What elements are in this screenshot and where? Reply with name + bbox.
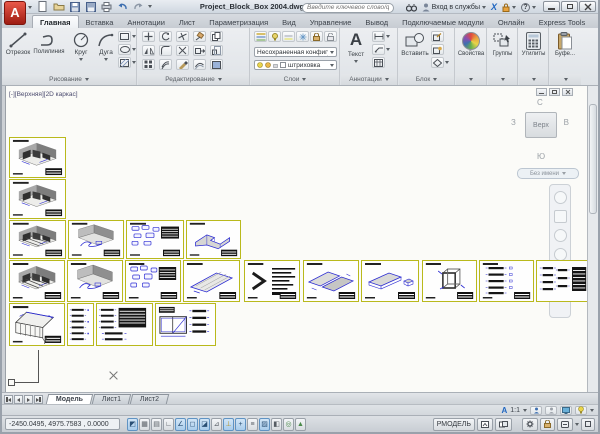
annotation-scale-icon: А [501,406,507,415]
viewcube-east[interactable]: В [564,118,569,127]
move-tool[interactable] [142,31,155,42]
sign-in-control[interactable]: Вход в службы [422,3,486,12]
drawing-close-button[interactable] [562,88,573,96]
stretch-tool[interactable] [193,45,206,56]
block-thumbnail[interactable] [9,303,65,346]
color-wheel-icon [462,32,480,50]
drawing-canvas[interactable]: [-][Верхняя][2D каркас] С З В Ю Верх Без… [6,86,587,392]
drawing-minimize-button[interactable] [536,88,547,96]
viewcube[interactable]: С З В Ю Верх [509,98,573,164]
autocad-window: A Project_Block_Box 2004.dwg [0,0,600,434]
block-thumbnail[interactable] [155,303,216,346]
calculator-icon [526,32,541,50]
viewcube-top-face[interactable]: Верх [525,112,557,138]
table-tool[interactable] [372,57,385,68]
lock-control[interactable] [502,3,516,12]
scrollbar-thumb[interactable] [589,104,597,214]
fillet-tool[interactable] [159,45,172,56]
scale-tool[interactable] [210,45,223,56]
ribbon-tab-bar: Главная Вставка Аннотации Лист Параметри… [2,14,598,28]
panel-draw: Отрезок Полилиния Круг Дуга [2,28,137,85]
tab-insert[interactable]: Вставка [79,16,121,28]
infer-constraints-toggle[interactable]: ◩ [127,418,138,431]
ucs-x-axis [14,382,39,383]
ucs-origin-box [8,379,15,386]
block-thumbnail[interactable] [479,260,534,302]
leader-tool[interactable] [372,44,385,55]
block-thumbnail[interactable] [536,260,587,302]
minimize-button[interactable] [543,1,560,12]
search-binoculars-icon[interactable] [406,3,417,12]
polyline-icon [39,32,59,48]
block-thumbnail[interactable] [303,260,359,302]
viewcube-north[interactable]: С [537,98,543,107]
ribbon: Отрезок Полилиния Круг Дуга [2,28,598,86]
layer-isolate-tool[interactable] [282,31,295,42]
arc-tool[interactable]: Дуга [94,30,118,63]
ortho-toggle[interactable]: ∟ [163,418,174,431]
block-thumbnail[interactable] [68,220,124,259]
panel-label-layers[interactable]: Слои [251,74,339,85]
copy-tool[interactable] [210,31,223,42]
panel-utilities: Утилиты [519,28,549,85]
restore-button[interactable] [561,1,578,12]
annotation-monitor-toggle[interactable]: ▲ [295,418,306,431]
osnap-toggle[interactable]: ◻ [187,418,198,431]
tab-parametric[interactable]: Параметризация [202,16,275,28]
match-properties-tool[interactable] [176,59,189,70]
first-layout-button[interactable] [4,395,13,404]
selection-cycling-toggle[interactable]: ◎ [283,418,294,431]
drawing-restore-button[interactable] [549,88,560,96]
layer-state-dropdown[interactable]: Несохраненная конфигурация сло [254,47,337,57]
polar-tracking-toggle[interactable]: ∠ [175,418,186,431]
quick-properties-toggle[interactable]: ◧ [271,418,282,431]
text-tool[interactable]: A Текст [343,30,369,65]
array-tool[interactable] [142,59,155,70]
block-thumbnail[interactable] [183,260,240,302]
tab-express-tools[interactable]: Express Tools [532,16,593,28]
help-search [302,2,394,12]
quick-view-drawings-button[interactable] [495,418,512,431]
panel-label-clipboard[interactable] [550,74,581,85]
osnap-3d-toggle[interactable]: ◪ [199,418,210,431]
block-thumbnail[interactable] [96,303,153,346]
erase-tool[interactable] [193,31,206,42]
vertical-scrollbar[interactable] [587,86,598,392]
model-space-button[interactable]: РМОДЕЛЬ [433,418,475,431]
status-overflow-arrow-icon[interactable] [590,409,594,412]
viewcube-wcs-menu[interactable]: Без имени [517,168,579,179]
plot-button[interactable] [100,1,113,12]
save-button[interactable] [68,1,81,12]
transparency-toggle[interactable]: ▨ [259,418,270,431]
insert-block-tool[interactable]: Вставить [401,30,429,57]
block-thumbnail[interactable] [361,260,419,302]
zoom-icon[interactable] [554,229,567,242]
open-button[interactable] [52,1,65,12]
ucs-y-axis [38,350,39,383]
viewcube-south[interactable]: Ю [537,152,545,161]
hardware-acceleration-icon[interactable] [575,406,587,415]
clipboard-tool[interactable]: Буфе... [551,30,579,57]
application-menu-arrow-icon [28,6,32,9]
circle-tool[interactable]: Круг [68,30,94,63]
steering-wheel-icon[interactable] [554,191,567,204]
exchange-apps-icon[interactable]: X [491,2,497,12]
ucs-y-axis-label: Y [42,337,47,346]
layer-properties-tool[interactable] [254,31,267,42]
qat-customize-arrow-icon[interactable] [148,5,152,8]
annotation-visibility-icon[interactable] [530,406,542,415]
layer-lock-tool[interactable] [310,31,323,42]
block-thumbnail[interactable] [9,220,66,259]
arc-icon [97,32,115,48]
layer-color-swatch [280,62,286,68]
viewport-controls-label[interactable]: [-][Верхняя][2D каркас] [9,91,78,98]
dimension-tool[interactable] [372,31,385,42]
utilities-tool[interactable]: Утилиты [520,30,547,57]
new-button[interactable] [36,1,49,12]
redo-button[interactable] [132,1,145,12]
layer-on-icon [257,62,263,68]
panel-properties: Свойства [456,28,487,85]
block-thumbnail[interactable] [67,303,94,346]
block-edit-tool[interactable] [431,31,444,42]
block-thumbnail[interactable] [125,260,181,302]
block-thumbnail[interactable] [422,260,477,302]
block-thumbnail[interactable] [126,220,184,259]
panel-label-annotation[interactable]: Аннотации [341,74,397,85]
panel-label-groups[interactable] [488,74,517,85]
panel-modify: Редактирование [138,28,250,85]
panel-groups: Группы [488,28,518,85]
pan-icon[interactable] [554,210,567,223]
sign-in-label: Вход в службы [432,4,480,11]
snap-toggle[interactable]: ▦ [139,418,150,431]
lineweight-toggle[interactable]: ≡ [247,418,258,431]
hatch-tool[interactable] [118,57,131,68]
search-input[interactable] [302,3,394,13]
quick-view-layouts-button[interactable] [477,418,493,431]
next-layout-button[interactable] [24,395,33,404]
tab-view[interactable]: Вид [275,16,303,28]
annotation-autoscale-icon[interactable] [545,406,557,415]
layer-freeze-tool[interactable] [296,31,309,42]
tab-home[interactable]: Главная [32,15,79,28]
layout-tab-bar: Модель Лист1 Лист2 [2,392,598,404]
panel-label-modify[interactable]: Редактирование [138,74,249,85]
drawing-window-controls [536,88,573,96]
polyline-tool[interactable]: Полилиния [32,30,66,55]
window-controls [543,1,596,12]
close-button[interactable] [579,1,596,12]
panel-label-draw[interactable]: Рисование [2,74,136,85]
annotation-scale-arrow-icon[interactable] [523,409,527,412]
status-bar: -2450.0495, 4975.7583 , 0.0000 ◩ ▦ ▤ ∟ ∠… [2,415,598,432]
tab-plugins[interactable]: Подключаемые модули [395,16,491,28]
otrack-toggle[interactable]: ⊿ [211,418,222,431]
insert-block-icon [405,32,425,49]
groups-icon [493,32,512,50]
layer-dropdown[interactable]: штриховка [254,60,337,70]
trim-tool[interactable] [176,31,189,42]
ellipse-tool[interactable] [118,44,131,55]
annotation-scale-value[interactable]: 1:1 [510,407,520,414]
panel-block: Вставить Блок [399,28,455,85]
line-tool[interactable]: Отрезок [4,30,32,56]
layer-off-tool[interactable] [268,31,281,42]
dynamic-input-toggle[interactable]: + [235,418,246,431]
circle-icon [72,32,90,48]
rotate-tool[interactable] [159,31,172,42]
text-icon: A [343,30,369,50]
grid-toggle[interactable]: ▤ [151,418,162,431]
block-thumbnail[interactable] [9,179,66,219]
drawing-status-bar: А 1:1 [2,404,598,415]
panel-label-utilities[interactable] [519,74,548,85]
quick-access-toolbar [36,1,152,12]
block-thumbnail[interactable] [9,260,65,302]
groups-tool[interactable]: Группы [489,30,516,57]
tab-layout2[interactable]: Лист2 [130,394,170,404]
clipboard-icon [558,32,572,50]
viewcube-west[interactable]: З [511,118,516,127]
clean-screen-button[interactable] [581,418,595,431]
layer-unlock-icon [273,62,278,68]
explode-tool[interactable] [176,45,189,56]
last-layout-button[interactable] [34,395,43,404]
panel-layers: Несохраненная конфигурация сло штриховка… [251,28,340,85]
panel-label-properties[interactable] [456,74,486,85]
performance-button[interactable] [557,418,573,431]
panel-annotation: A Текст Аннотации [341,28,398,85]
tab-annotate[interactable]: Аннотации [120,16,172,28]
line-icon [9,32,27,48]
offset-tool[interactable] [159,59,172,70]
dynamic-ucs-toggle[interactable]: ⊥ [223,418,234,431]
statusbar-lock-button[interactable] [540,418,555,431]
coordinates-display[interactable]: -2450.0495, 4975.7583 , 0.0000 [5,418,120,430]
workspace-switching-icon[interactable] [560,406,572,415]
save-as-button[interactable] [84,1,97,12]
undo-button[interactable] [116,1,129,12]
block-thumbnail[interactable] [186,220,241,259]
help-control[interactable]: ? [521,3,536,12]
block-attributes-tool[interactable] [431,44,444,55]
rectangle-tool[interactable] [118,31,131,42]
mirror-tool[interactable] [142,45,155,56]
layer-unlock-tool[interactable] [324,31,337,42]
block-thumbnail[interactable] [244,260,300,302]
layer-thaw-icon [265,62,271,68]
block-thumbnail[interactable] [67,260,123,302]
prev-layout-button[interactable] [14,395,23,404]
gradient-tool[interactable] [210,59,223,70]
tab-output[interactable]: Вывод [358,16,395,28]
block-manage-tool[interactable] [431,57,444,68]
tab-layout1[interactable]: Лист1 [92,394,132,404]
blend-tool[interactable] [193,59,206,70]
properties-tool[interactable]: Свойства [457,30,485,57]
settings-gear-button[interactable] [522,418,538,431]
tab-manage[interactable]: Управление [303,16,359,28]
tab-model[interactable]: Модель [46,394,94,404]
statusbar-menu-arrow-icon[interactable] [575,423,579,426]
panel-label-block[interactable]: Блок [399,74,454,85]
tab-online[interactable]: Онлайн [491,16,532,28]
tab-layout[interactable]: Лист [172,16,202,28]
panel-clipboard: Буфе... [550,28,581,85]
application-menu-button[interactable]: A [4,1,26,25]
title-bar: A Project_Block_Box 2004.dwg [2,0,598,14]
block-thumbnail[interactable] [9,137,66,178]
